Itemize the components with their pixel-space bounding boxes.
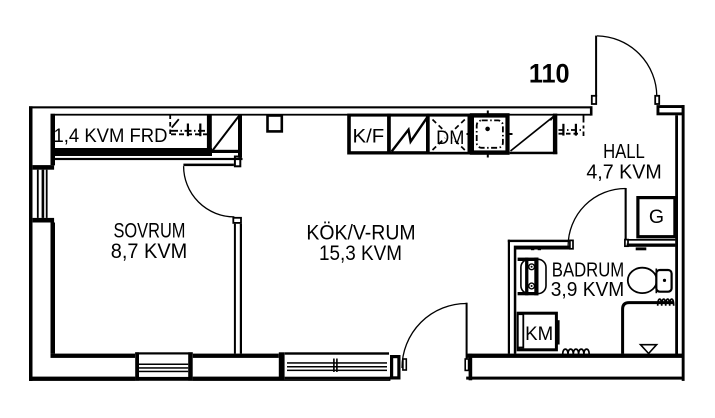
svg-text:G: G <box>649 206 664 228</box>
svg-text:1,4 KVM FRD: 1,4 KVM FRD <box>54 125 168 146</box>
svg-text:KÖK/V-RUM: KÖK/V-RUM <box>306 220 415 244</box>
svg-text:BADRUM: BADRUM <box>552 258 624 281</box>
svg-text:4,7 KVM: 4,7 KVM <box>586 161 661 183</box>
svg-text:15,3 KVM: 15,3 KVM <box>319 242 402 265</box>
svg-text:HALL: HALL <box>603 140 645 163</box>
svg-text:110: 110 <box>529 60 570 89</box>
svg-text:DM: DM <box>436 127 464 149</box>
svg-text:K/F: K/F <box>353 126 385 148</box>
svg-text:KM: KM <box>525 324 553 345</box>
svg-text:3,9 KVM: 3,9 KVM <box>551 279 624 302</box>
svg-text:8,7 KVM: 8,7 KVM <box>111 239 187 263</box>
